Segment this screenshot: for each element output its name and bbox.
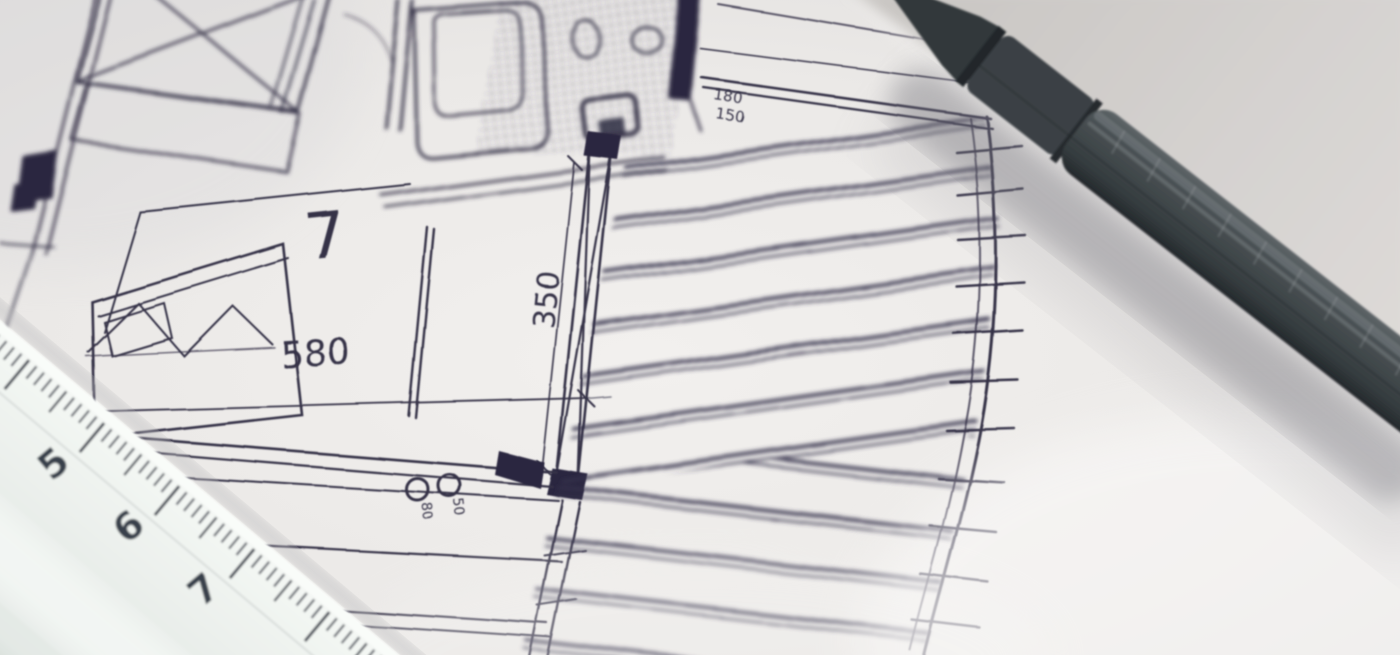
- dimension-350-label: 350: [526, 269, 567, 330]
- dimension-580-label: 580: [279, 330, 352, 377]
- photo-scene: 7 580 350 180 150 80 50 4 5: [0, 0, 1400, 655]
- dimension-80-label: 80: [418, 502, 436, 521]
- room-number-label: 7: [302, 198, 350, 276]
- dimension-50-label: 50: [450, 498, 468, 517]
- floor-plan-photo: 7 580 350 180 150 80 50 4 5: [0, 0, 1400, 655]
